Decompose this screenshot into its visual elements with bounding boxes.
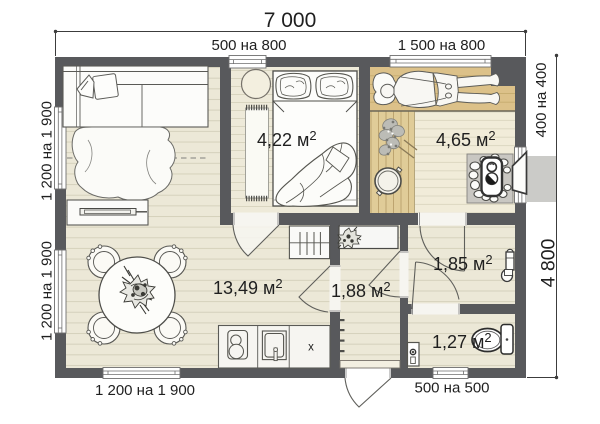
svg-text:4,65 м2: 4,65 м2 [436, 128, 496, 150]
svg-text:1 500 на 800: 1 500 на 800 [398, 37, 486, 54]
svg-text:7 000: 7 000 [264, 9, 317, 32]
svg-text:500 на 500: 500 на 500 [414, 380, 489, 397]
svg-text:13,49 м2: 13,49 м2 [213, 276, 283, 298]
svg-text:x: x [308, 342, 314, 354]
svg-text:1,27 м2: 1,27 м2 [432, 330, 492, 352]
svg-text:1 200 на 1 900: 1 200 на 1 900 [39, 241, 56, 341]
svg-text:4,22 м2: 4,22 м2 [257, 128, 317, 150]
svg-text:1,88 м2: 1,88 м2 [331, 279, 391, 301]
svg-text:1 200 на 1 900: 1 200 на 1 900 [39, 101, 56, 201]
svg-text:4 800: 4 800 [538, 238, 560, 287]
svg-text:1,85 м2: 1,85 м2 [433, 252, 493, 274]
svg-text:500 на 800: 500 на 800 [211, 37, 286, 54]
svg-text:1 200 на 1 900: 1 200 на 1 900 [95, 382, 195, 399]
svg-text:400 на 400: 400 на 400 [533, 62, 550, 137]
